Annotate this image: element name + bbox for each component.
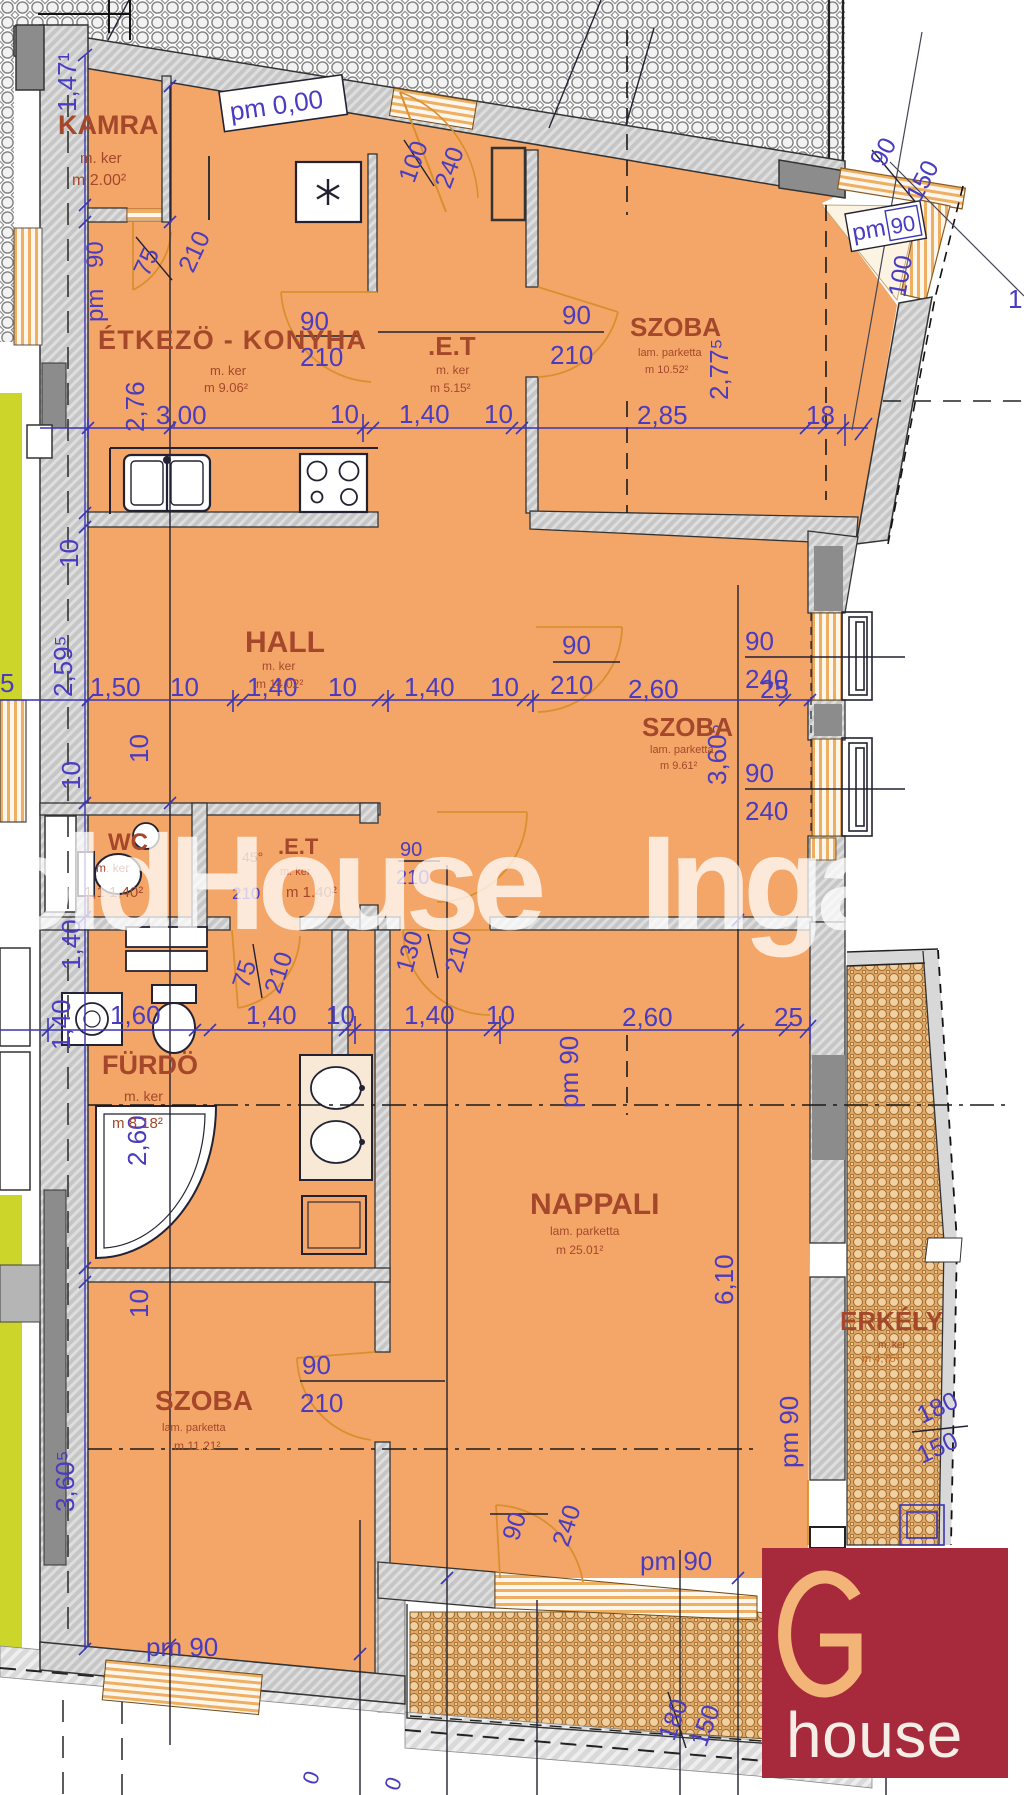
svg-text:m. ker: m. ker [878, 1340, 906, 1351]
svg-text:pm 90: pm 90 [640, 1546, 712, 1576]
svg-text:10: 10 [490, 672, 519, 702]
svg-text:1,40: 1,40 [46, 999, 76, 1050]
svg-text:90: 90 [745, 626, 774, 656]
svg-text:10: 10 [326, 1000, 355, 1030]
svg-text:90: 90 [562, 630, 591, 660]
svg-text:210: 210 [300, 1388, 343, 1418]
svg-text:m 4,75²: m 4,75² [862, 1353, 900, 1365]
svg-text:pm 90: pm 90 [554, 1036, 584, 1108]
svg-text:3,60⁵: 3,60⁵ [50, 1451, 80, 1512]
svg-text:oldHouse: oldHouse [0, 809, 542, 958]
svg-text:10: 10 [484, 399, 513, 429]
svg-text:10: 10 [56, 761, 86, 790]
svg-text:2,85: 2,85 [637, 400, 688, 430]
svg-text:FÜRDÖ: FÜRDÖ [102, 1050, 198, 1080]
svg-text:m. ker: m. ker [80, 150, 122, 167]
svg-text:2,59⁵: 2,59⁵ [48, 636, 78, 697]
svg-text:pm 90: pm 90 [146, 1632, 218, 1662]
svg-text:10: 10 [330, 399, 359, 429]
svg-text:90: 90 [302, 1350, 331, 1380]
svg-text:m. ker: m. ker [436, 363, 469, 377]
svg-text:90: 90 [889, 210, 917, 239]
svg-text:210: 210 [550, 670, 593, 700]
svg-text:25: 25 [774, 1002, 803, 1032]
svg-text:m 5.15²: m 5.15² [430, 381, 471, 395]
svg-text:m 11.21²: m 11.21² [174, 1439, 220, 1453]
svg-text:6,10: 6,10 [709, 1254, 739, 1305]
svg-text:ÉTKEZÖ - KONYHA: ÉTKEZÖ - KONYHA [98, 324, 366, 355]
svg-text:2,77⁵: 2,77⁵ [704, 339, 734, 400]
svg-text:1,50: 1,50 [90, 672, 141, 702]
svg-text:2,60: 2,60 [628, 674, 679, 704]
svg-text:1,60: 1,60 [110, 1000, 161, 1030]
svg-text:lam. parketta: lam. parketta [650, 744, 714, 756]
svg-text:90: 90 [745, 758, 774, 788]
svg-text:m 8.18²: m 8.18² [112, 1115, 163, 1132]
svg-text:m 14.02²: m 14.02² [256, 677, 303, 691]
svg-text:m. ker: m. ker [262, 659, 295, 673]
svg-text:10: 10 [124, 734, 154, 763]
svg-text:1,40: 1,40 [404, 1000, 455, 1030]
svg-text:ERKÉLY: ERKÉLY [840, 1306, 943, 1336]
svg-text:m 9.06²: m 9.06² [204, 380, 249, 395]
svg-text:1: 1 [1008, 284, 1022, 314]
svg-text:pm: pm [850, 214, 888, 246]
svg-text:KAMRA: KAMRA [58, 110, 159, 140]
svg-text:2,60: 2,60 [622, 1002, 673, 1032]
svg-text:240: 240 [745, 664, 788, 694]
svg-text:210: 210 [550, 340, 593, 370]
svg-text:10: 10 [328, 672, 357, 702]
svg-text:3,00: 3,00 [156, 400, 207, 430]
svg-text:2,76: 2,76 [120, 381, 150, 432]
svg-text:5: 5 [0, 668, 14, 698]
svg-text:m 2.00²: m 2.00² [72, 172, 127, 189]
svg-text:m. ker: m. ker [210, 363, 247, 378]
svg-text:18: 18 [806, 400, 835, 430]
svg-text:lam. parketta: lam. parketta [550, 1224, 620, 1238]
svg-text:1,40: 1,40 [246, 1000, 297, 1030]
svg-text:90: 90 [562, 300, 591, 330]
svg-text:pm 90: pm 90 [774, 1396, 804, 1468]
svg-text:1,40: 1,40 [404, 672, 455, 702]
svg-text:m 25.01²: m 25.01² [556, 1243, 603, 1257]
svg-text:.E.T: .E.T [428, 331, 476, 361]
svg-text:1,47¹: 1,47¹ [52, 52, 82, 112]
svg-text:1,40: 1,40 [399, 399, 450, 429]
svg-text:house: house [786, 1699, 963, 1771]
svg-text:HALL: HALL [245, 626, 325, 659]
svg-text:SZOBA: SZOBA [155, 1385, 253, 1416]
svg-text:Inga: Inga [640, 809, 893, 958]
svg-text:10: 10 [486, 1000, 515, 1030]
svg-text:10: 10 [170, 672, 199, 702]
svg-text:m. ker: m. ker [124, 1088, 163, 1104]
svg-text:10: 10 [54, 539, 84, 568]
svg-text:m 10.52²: m 10.52² [645, 364, 689, 376]
svg-text:SZOBA: SZOBA [630, 312, 721, 342]
svg-text:SZOBA: SZOBA [642, 712, 733, 742]
svg-text:lam. parketta: lam. parketta [638, 347, 702, 359]
svg-text:NAPPALI: NAPPALI [530, 1188, 659, 1221]
svg-text:90: 90 [82, 241, 109, 268]
svg-text:10: 10 [124, 1289, 154, 1318]
svg-text:pm: pm [82, 289, 109, 322]
svg-text:m 9.61²: m 9.61² [660, 760, 698, 772]
svg-text:lam. parketta: lam. parketta [162, 1422, 226, 1434]
